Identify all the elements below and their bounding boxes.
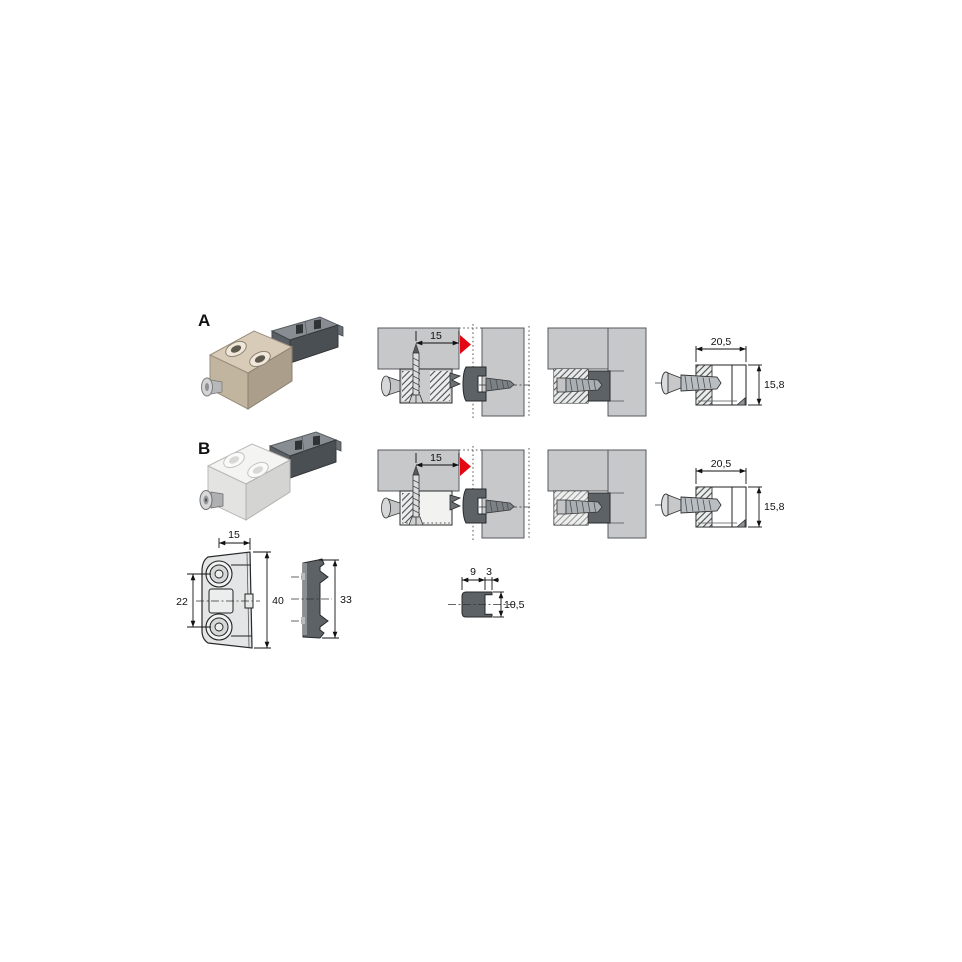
front-view-drawing: 15 22 40 [170, 525, 290, 660]
catch-outline [196, 552, 260, 648]
dimension-height: 15,8 [748, 487, 785, 527]
dimension-top-width: 15 [219, 529, 250, 550]
door-panel [608, 328, 646, 416]
catch-pin-section [382, 376, 401, 396]
dim-15-8-label: 15,8 [764, 501, 785, 513]
dim-20-5-label: 20,5 [711, 336, 732, 348]
side-dimension-diagram-b: 20,5 15,8 [653, 442, 793, 542]
dim-33-label: 33 [340, 594, 352, 606]
door-panel [482, 328, 524, 416]
dimension-width: 20,5 [696, 336, 746, 362]
catch-body-photo-b [200, 444, 290, 520]
insert-side-view-drawing: 33 [288, 550, 360, 650]
dim-40-label: 40 [272, 595, 284, 607]
dimension-width: 20,5 [696, 458, 746, 484]
side-dimension-diagram-a: 20,5 15,8 [653, 320, 793, 420]
direction-arrow-icon [460, 335, 471, 354]
engaged-diagram-b [542, 440, 654, 546]
door-panel [608, 450, 646, 538]
dim-20-5-label: 20,5 [711, 458, 732, 470]
dim-15-label: 15 [228, 529, 240, 541]
direction-arrow-icon [460, 457, 471, 476]
dimension-height: 15,8 [748, 365, 785, 405]
install-diagram-a: 15 [372, 318, 534, 424]
install-diagram-b: 15 [372, 440, 534, 546]
top-panel [548, 450, 608, 491]
dim-15-8-label: 15,8 [764, 379, 785, 391]
dim-3-label: 3 [486, 566, 492, 578]
dim-10-5-label: 10,5 [504, 599, 525, 611]
dim-15-label: 15 [430, 452, 442, 464]
insert-cross-section-drawing: 9 3 10,5 [440, 548, 530, 628]
dimension-height: 40 [253, 552, 284, 648]
catch-body-photo-a [202, 331, 293, 409]
door-panel [482, 450, 524, 538]
product-photo-a [196, 303, 348, 431]
technical-sheet: A [0, 0, 962, 962]
catch-pin-photo-b [200, 491, 223, 510]
dim-9-label: 9 [470, 566, 476, 578]
dim-15-label: 15 [430, 330, 442, 342]
insert-plate [291, 559, 332, 638]
catch-pin-section [382, 498, 401, 518]
engaged-diagram-a [542, 318, 654, 424]
top-panel [548, 328, 608, 369]
dim-22-label: 22 [176, 596, 188, 608]
